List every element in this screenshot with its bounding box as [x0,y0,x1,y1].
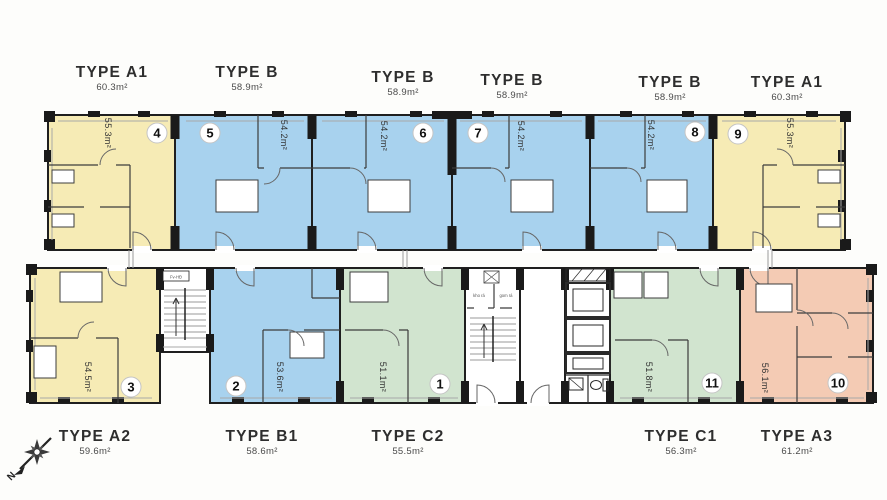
room-area: 54.2m² [516,121,526,151]
type-area-label: 58.9m² [496,90,527,101]
unit-number: 4 [153,126,161,141]
type-area-label: 59.6m² [79,446,110,457]
trash-room-right-label: gom rá [499,293,513,298]
type-area-label: 60.3m² [771,92,802,103]
bathroom-u8 [647,180,687,212]
room-area: 55.3m² [785,118,795,148]
floor-plan-svg: Fv-HĐ kho rá gom rá TYPE A1 6 [0,0,887,500]
room-area: 54.2m² [646,120,656,150]
unit-number: 9 [734,127,741,142]
trash-room-left-label: kho rá [473,293,485,298]
floor-plan-image: Fv-HĐ kho rá gom rá TYPE A1 6 [0,0,887,500]
type-labels-top: TYPE A1 60.3m² TYPE B 58.9m² TYPE B 58.9… [76,64,823,103]
type-label: TYPE C2 [371,428,444,445]
compass-rose-icon: N [5,438,51,483]
type-label: TYPE B [371,69,434,86]
type-area-label: 58.9m² [387,87,418,98]
bathroom-u5 [216,180,258,212]
room-area: 53.6m² [275,362,285,392]
type-label: TYPE B [480,72,543,89]
unit-number: 1 [436,377,443,392]
room-area: 55.3m² [103,118,113,148]
type-label: TYPE A1 [751,74,823,91]
unit-number: 6 [419,126,426,141]
bathroom-u1 [350,272,388,302]
type-area-label: 55.5m² [392,446,423,457]
unit-number: 7 [474,126,481,141]
bathroom-u2 [290,332,324,358]
type-label: TYPE A3 [761,428,833,445]
bathroom-u3 [60,272,102,302]
compass-north-label: N [5,470,18,483]
bathroom-u11-b [644,272,668,298]
type-label: TYPE B1 [225,428,298,445]
unit-number: 5 [206,126,213,141]
type-area-label: 56.3m² [665,446,696,457]
type-label: TYPE A2 [59,428,131,445]
type-label: TYPE C1 [644,428,717,445]
bathroom-u11-a [614,272,642,298]
unit-number: 2 [232,379,239,394]
stair-box-label: Fv-HĐ [170,275,182,280]
room-area: 51.1m² [378,362,388,392]
type-label: TYPE B [638,74,701,91]
lobby-area [520,268,565,403]
bathroom-u6 [368,180,410,212]
type-label: TYPE A1 [76,64,148,81]
room-area: 54.5m² [83,362,93,392]
type-area-label: 58.9m² [654,92,685,103]
type-label: TYPE B [215,64,278,81]
bathroom-u7 [511,180,553,212]
unit-number: 3 [127,380,134,395]
room-area: 54.2m² [379,121,389,151]
unit-number: 11 [705,376,719,391]
room-area: 51.8m² [644,362,654,392]
unit-number: 8 [691,125,698,140]
type-area-label: 58.6m² [246,446,277,457]
type-area-label: 58.9m² [231,82,262,93]
type-area-label: 61.2m² [781,446,812,457]
room-area: 56.1m² [760,363,770,393]
unit-number: 10 [831,376,845,391]
type-area-label: 60.3m² [96,82,127,93]
room-area: 54.2m² [279,120,289,150]
bathroom-u10 [756,284,792,312]
type-labels-bottom: TYPE A2 59.6m² TYPE B1 58.6m² TYPE C2 55… [59,428,833,457]
